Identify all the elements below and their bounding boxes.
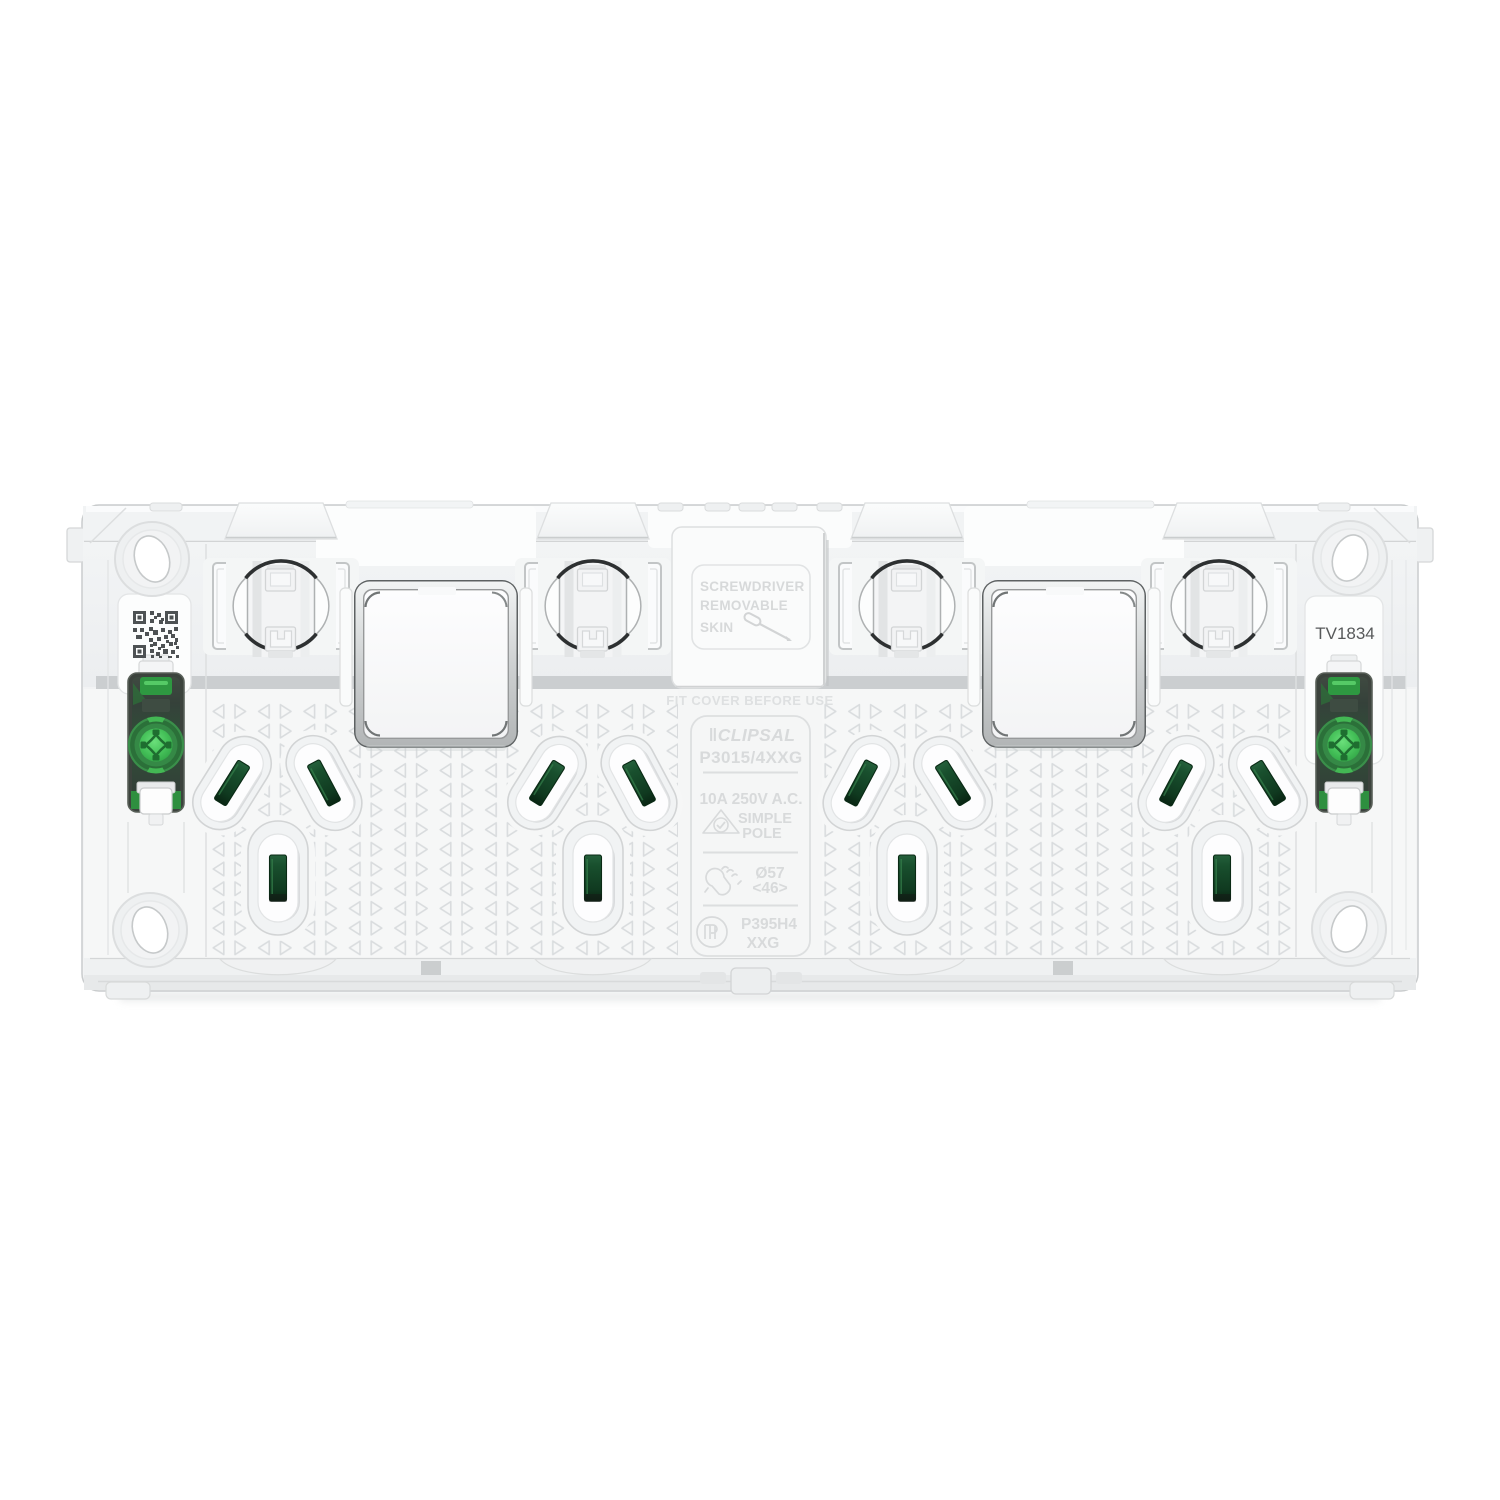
svg-text:TV1834: TV1834: [1315, 624, 1375, 643]
svg-text:SKIN: SKIN: [700, 620, 733, 635]
svg-text:REMOVABLE: REMOVABLE: [700, 598, 788, 613]
svg-text:POLE: POLE: [742, 826, 782, 842]
svg-text:‖CLIPSAL: ‖CLIPSAL: [709, 725, 796, 745]
svg-text:P3015/4XXG: P3015/4XXG: [699, 748, 802, 767]
svg-text:SCREWDRIVER: SCREWDRIVER: [700, 579, 805, 594]
svg-text:XXG: XXG: [747, 935, 780, 952]
svg-text:P395H4: P395H4: [741, 916, 797, 933]
svg-text:SIMPLE: SIMPLE: [738, 811, 792, 827]
svg-text:10A 250V A.C.: 10A 250V A.C.: [699, 791, 802, 808]
svg-text:FIT COVER BEFORE USE: FIT COVER BEFORE USE: [666, 693, 833, 708]
svg-text:<46>: <46>: [752, 880, 787, 897]
